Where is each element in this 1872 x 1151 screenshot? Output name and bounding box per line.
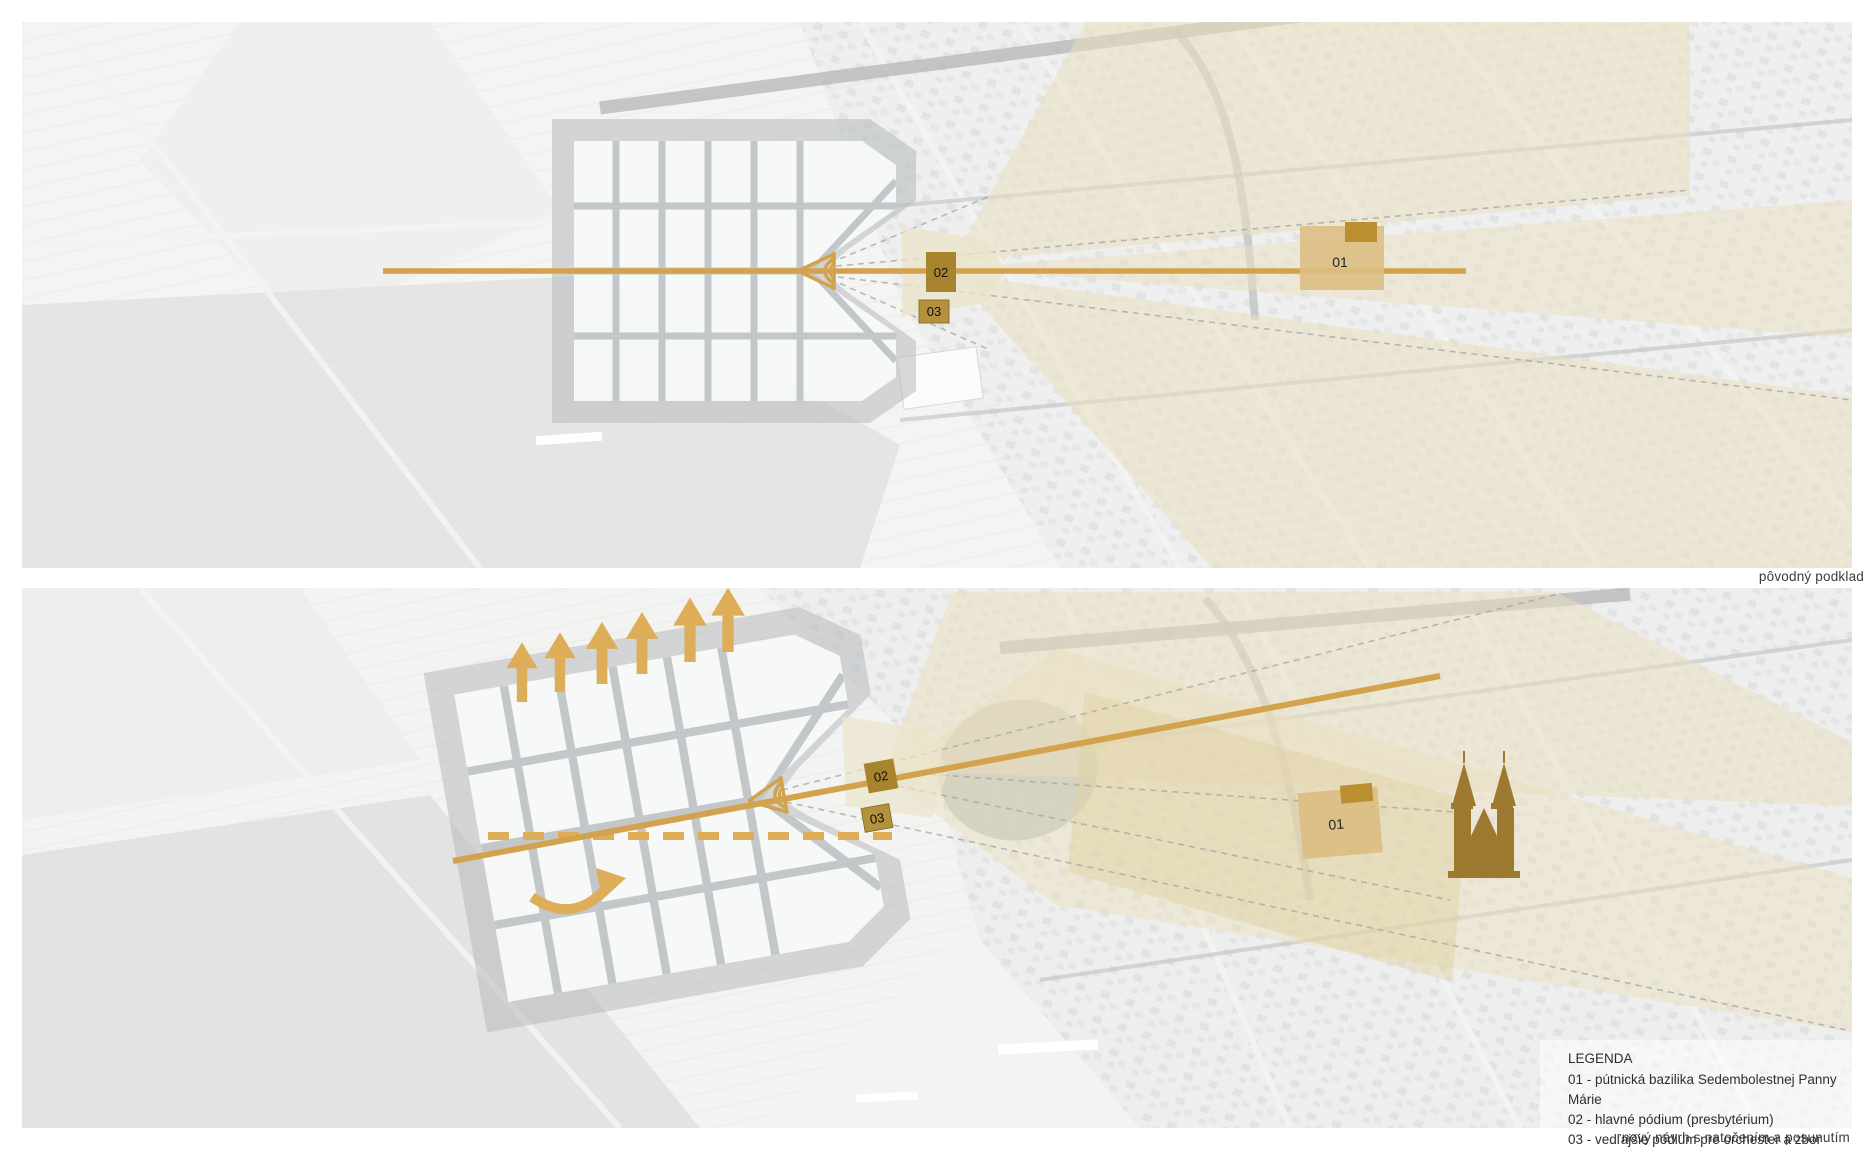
marker-01-label: 01 (1332, 254, 1348, 270)
marker-02-bottom: 02 (864, 759, 899, 794)
marker-02-top: 02 (926, 252, 956, 292)
legend-title: LEGENDA (1568, 1049, 1868, 1069)
site-map-proposal: 01 02 03 (22, 588, 1852, 1128)
caption-original: pôvodný podklad (1759, 569, 1864, 584)
marker-03-label: 03 (869, 810, 886, 827)
site-map-original: 01 02 03 (22, 22, 1852, 568)
marker-02-label: 02 (873, 768, 890, 785)
marker-02-label: 02 (934, 265, 948, 280)
marker-03-bottom: 03 (861, 804, 893, 832)
site-diagram-page: 01 02 03 pôvodný podklad (0, 0, 1872, 1151)
marker-03-label: 03 (927, 304, 941, 319)
basilica-block-01-top: 01 (1300, 222, 1384, 290)
marker-01-label: 01 (1328, 816, 1345, 833)
basilica-block-01-bottom: 01 (1297, 782, 1383, 859)
legend-item-03: 03 - vedľajšie pódium pre orchester a zb… (1568, 1130, 1868, 1150)
legend-item-01: 01 - pútnická bazilika Sedembolestnej Pa… (1568, 1070, 1868, 1110)
legend: LEGENDA 01 - pútnická bazilika Sedembole… (1568, 1049, 1868, 1150)
marker-03-top: 03 (919, 300, 949, 323)
legend-item-02: 02 - hlavné pódium (presbytérium) (1568, 1110, 1868, 1130)
